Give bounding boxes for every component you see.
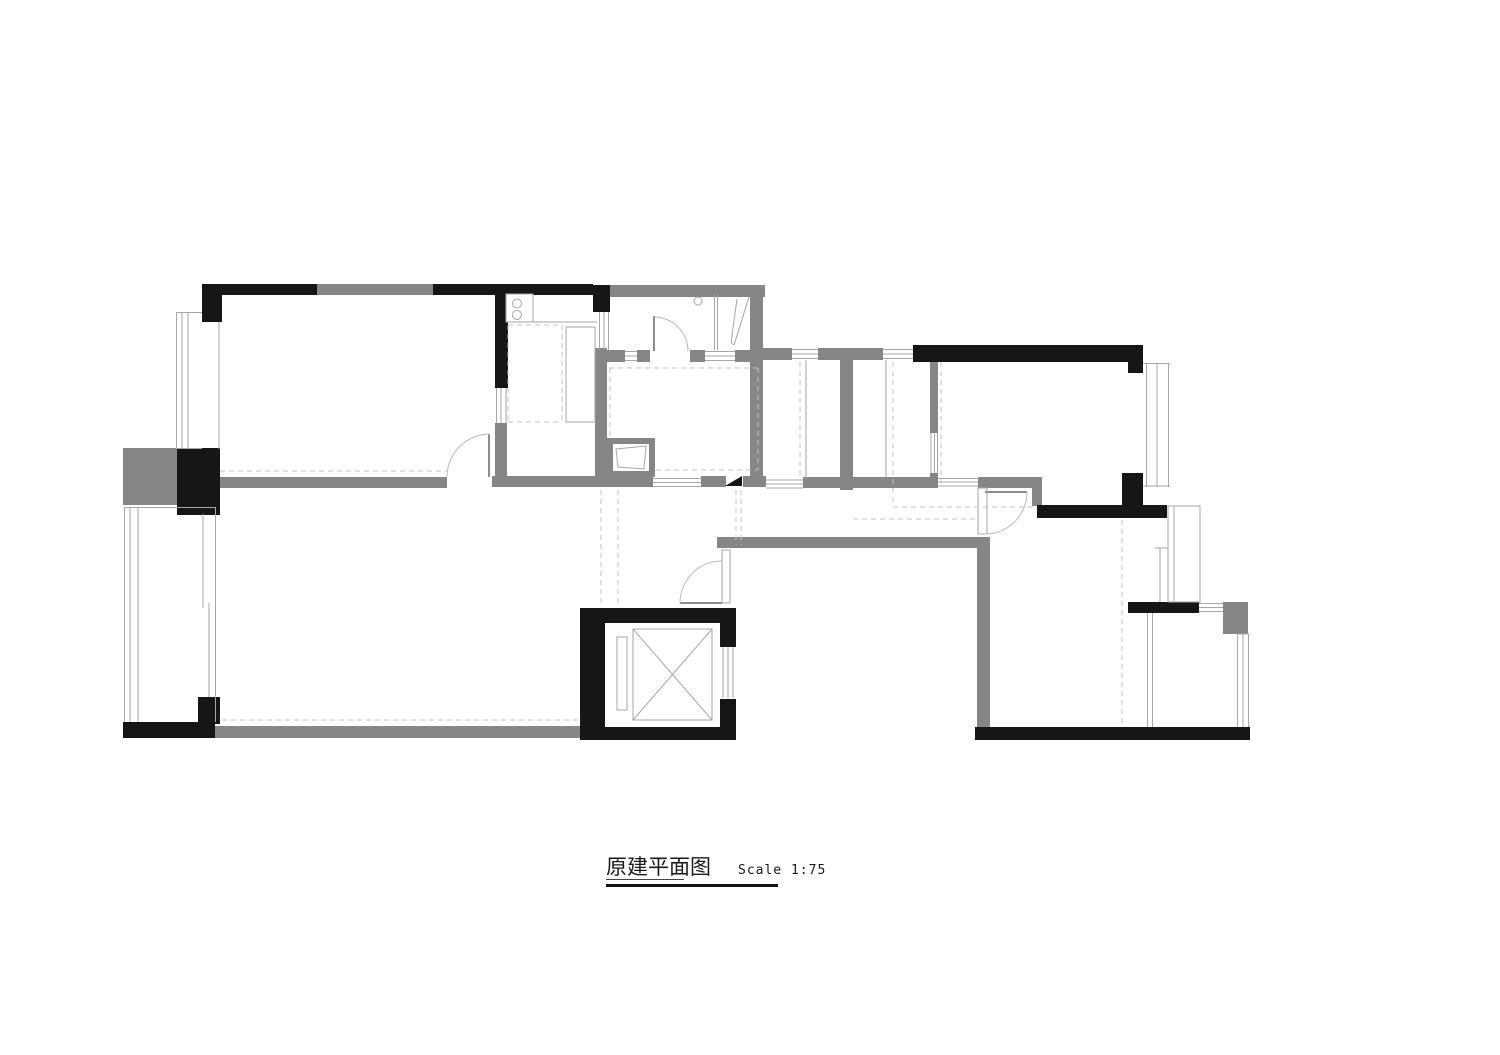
column-west-mid bbox=[177, 448, 220, 515]
column-northeast bbox=[1128, 345, 1143, 373]
bedroom2-west-wall bbox=[930, 362, 938, 433]
floor-plan-drawing bbox=[0, 0, 1500, 1055]
bath-divider-b bbox=[637, 350, 650, 362]
bedroom3-door-frame bbox=[978, 488, 987, 534]
title-block: 原建平面图 Scale 1:75 bbox=[606, 851, 826, 881]
bath-divider-c bbox=[690, 350, 705, 362]
bedroom2-north-wall bbox=[913, 345, 1143, 362]
door-arc-bath bbox=[654, 317, 688, 351]
shaft-north-b bbox=[818, 348, 883, 360]
bath-east-wall bbox=[750, 297, 763, 477]
stove-unit bbox=[506, 294, 533, 322]
bedroom3-west-wall bbox=[977, 548, 990, 727]
kitchen-south-wall bbox=[492, 476, 653, 487]
plan-scale-label: Scale 1:75 bbox=[738, 863, 826, 878]
plan-title: 原建平面图 bbox=[606, 851, 711, 881]
column-bath-north bbox=[593, 285, 610, 312]
bath-south-c bbox=[743, 476, 766, 487]
bath-divider-d bbox=[735, 350, 763, 362]
shaft-south-wall bbox=[803, 477, 938, 488]
shaft-north-a bbox=[763, 348, 792, 360]
door-arc-entry bbox=[680, 561, 722, 603]
bedroom1-south-wall bbox=[220, 477, 447, 488]
top-wall-east bbox=[433, 284, 593, 295]
southeast-wall bbox=[975, 727, 1250, 740]
shower-screen-base bbox=[731, 343, 734, 345]
door-arc-bedroom3 bbox=[985, 492, 1027, 534]
basin-box-bottom bbox=[607, 471, 655, 477]
threshold-marker bbox=[725, 476, 742, 486]
floor-plan-page: 原建平面图 Scale 1:75 bbox=[0, 0, 1500, 1055]
west-gray-block bbox=[123, 448, 177, 505]
column-bedroom2-se bbox=[1122, 473, 1143, 505]
bedroom2-south-wall bbox=[1037, 505, 1167, 518]
shower-screen-1 bbox=[731, 299, 737, 343]
kitchen-east-wall bbox=[595, 348, 607, 477]
wall-top-window-segment bbox=[317, 284, 433, 295]
floor-drain bbox=[694, 297, 702, 305]
top-wall-west bbox=[202, 284, 317, 295]
ac-platform bbox=[1168, 506, 1200, 602]
bath-north-wall bbox=[605, 285, 765, 297]
title-underline-thin bbox=[606, 879, 684, 880]
living-south-wall bbox=[215, 726, 580, 738]
balcony2-north-wall bbox=[1128, 602, 1199, 613]
bath-divider-a bbox=[605, 350, 625, 362]
bath-south-b bbox=[701, 476, 726, 487]
entry-door-frame bbox=[722, 550, 730, 603]
basin-box-top bbox=[607, 438, 655, 444]
kitchen-cabinet bbox=[566, 327, 595, 422]
shaft-divider-wall bbox=[840, 360, 853, 490]
elevator-cab-interior bbox=[605, 623, 720, 727]
hall-south-wall bbox=[717, 537, 990, 548]
balcony2-gray-block bbox=[1223, 602, 1248, 634]
door-arc-bedroom1 bbox=[447, 434, 490, 477]
hall-jamb-wall bbox=[1032, 477, 1042, 506]
southwest-wall bbox=[123, 722, 215, 738]
kitchen-west-gray bbox=[495, 423, 507, 476]
corner-stub-southwest bbox=[198, 697, 220, 724]
title-underline-thick bbox=[606, 884, 778, 887]
